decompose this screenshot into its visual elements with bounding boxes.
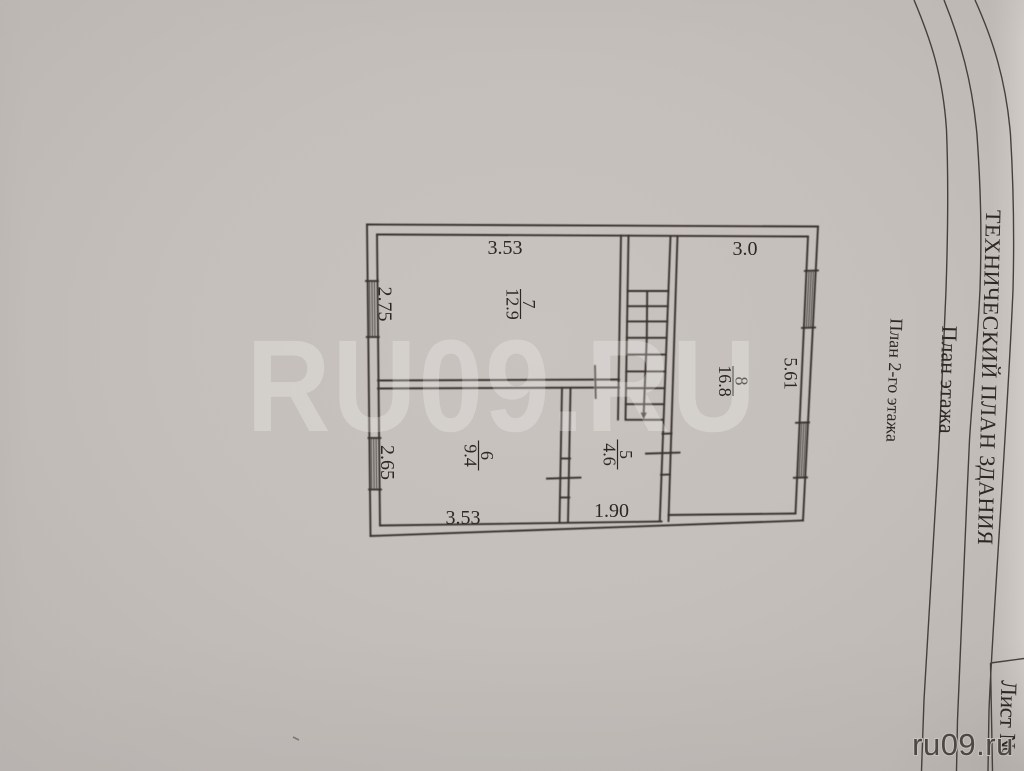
svg-text:3.53: 3.53 bbox=[446, 507, 481, 529]
svg-text:RU09.RU: RU09.RU bbox=[246, 314, 757, 460]
svg-text:3.0: 3.0 bbox=[733, 238, 758, 260]
svg-text:План этажа: План этажа bbox=[935, 325, 963, 434]
svg-text:3.53: 3.53 bbox=[488, 237, 523, 259]
svg-text:ru09.ru: ru09.ru bbox=[912, 727, 1014, 762]
svg-text:1.90: 1.90 bbox=[594, 500, 629, 522]
svg-text:5.61: 5.61 bbox=[780, 357, 800, 389]
